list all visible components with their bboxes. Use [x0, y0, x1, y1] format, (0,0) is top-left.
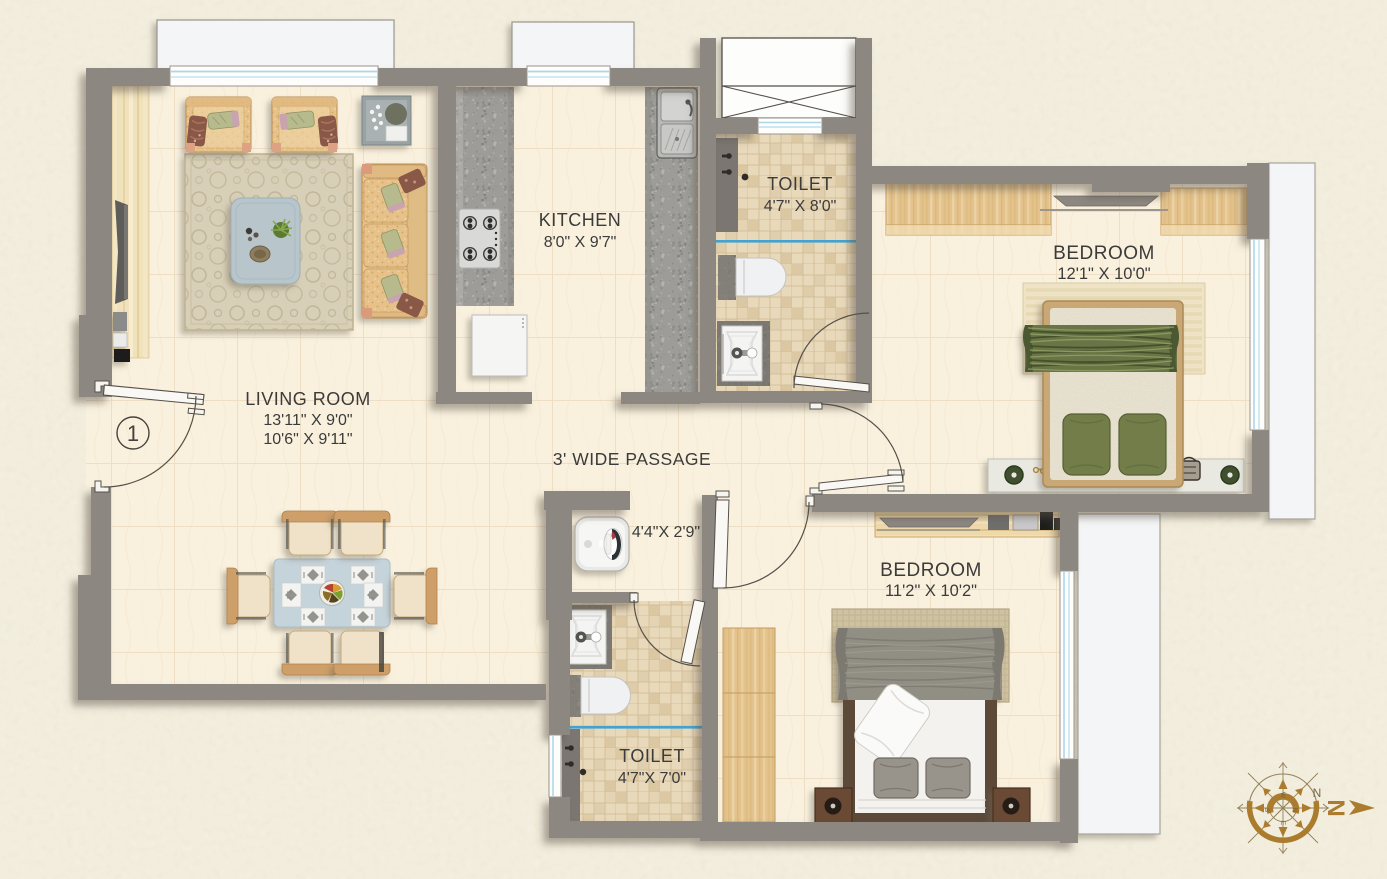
svg-text:TOILET: TOILET: [767, 174, 833, 194]
svg-text:11'2" X 10'2": 11'2" X 10'2": [885, 582, 977, 600]
svg-text:4'4"X 2'9": 4'4"X 2'9": [632, 524, 700, 541]
svg-text:10'6" X 9'11": 10'6" X 9'11": [263, 431, 352, 448]
svg-text:N: N: [1313, 786, 1322, 800]
svg-text:4'7" X 8'0": 4'7" X 8'0": [764, 198, 837, 215]
svg-text:E: E: [1279, 821, 1286, 826]
svg-text:BEDROOM: BEDROOM: [880, 560, 982, 581]
svg-text:4'7"X 7'0": 4'7"X 7'0": [618, 770, 686, 787]
svg-text:8'0" X 9'7": 8'0" X 9'7": [544, 234, 617, 251]
svg-text:12'1" X 10'0": 12'1" X 10'0": [1057, 265, 1150, 283]
svg-text:S: S: [1263, 808, 1270, 813]
svg-text:TOILET: TOILET: [619, 746, 685, 766]
svg-text:N: N: [1291, 808, 1298, 813]
svg-text:KITCHEN: KITCHEN: [539, 210, 622, 230]
svg-text:W: W: [1279, 792, 1286, 799]
svg-text:LIVING ROOM: LIVING ROOM: [245, 389, 371, 409]
svg-text:BEDROOM: BEDROOM: [1053, 243, 1155, 264]
svg-text:N: N: [1322, 799, 1349, 816]
svg-text:1: 1: [127, 421, 139, 446]
svg-text:3' WIDE PASSAGE: 3' WIDE PASSAGE: [553, 449, 711, 469]
svg-text:13'11" X 9'0": 13'11" X 9'0": [263, 412, 352, 429]
